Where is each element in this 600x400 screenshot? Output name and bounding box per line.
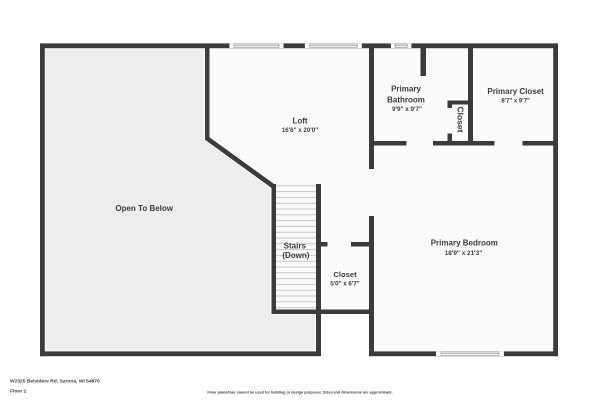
svg-text:(Down): (Down) xyxy=(282,251,309,260)
svg-text:Bathroom: Bathroom xyxy=(387,95,425,104)
svg-text:16'6" x 20'0": 16'6" x 20'0" xyxy=(282,127,318,134)
svg-text:Primary: Primary xyxy=(391,84,421,93)
svg-text:Stairs: Stairs xyxy=(284,241,307,250)
svg-text:8'7" x 9'7": 8'7" x 9'7" xyxy=(501,99,530,105)
svg-text:Primary Bedroom: Primary Bedroom xyxy=(431,238,498,247)
svg-text:Closet: Closet xyxy=(456,107,466,133)
svg-text:5'0" x 6'7": 5'0" x 6'7" xyxy=(330,280,360,287)
svg-text:Loft: Loft xyxy=(292,117,307,126)
svg-text:Closet: Closet xyxy=(333,270,357,279)
svg-text:18'9" x 21'3": 18'9" x 21'3" xyxy=(445,250,483,257)
svg-text:Open To Below: Open To Below xyxy=(115,204,173,213)
svg-text:Primary Closet: Primary Closet xyxy=(487,87,544,96)
svg-text:9'9" x 9'7": 9'9" x 9'7" xyxy=(392,106,422,113)
svg-text:Floor plans/tour cannot be use: Floor plans/tour cannot be used for buil… xyxy=(207,390,392,394)
svg-text:W2325 Belvidere Rd, Sarona, WI: W2325 Belvidere Rd, Sarona, WI 54870 xyxy=(10,378,100,384)
svg-text:Floor 2: Floor 2 xyxy=(10,388,27,394)
